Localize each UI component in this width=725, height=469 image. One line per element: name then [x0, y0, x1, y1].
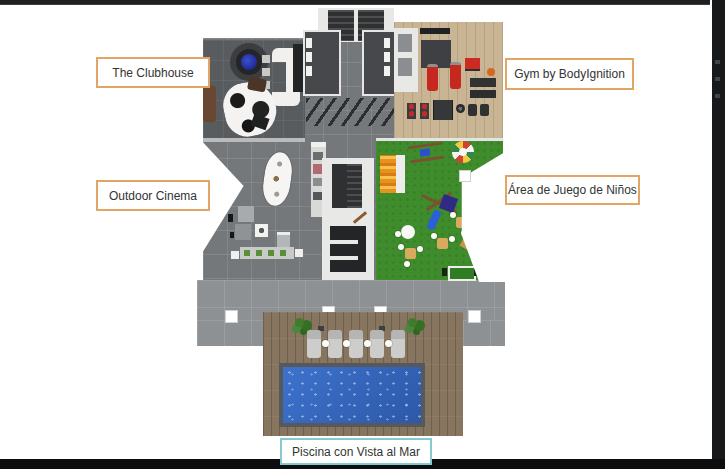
ottoman-1 — [238, 206, 254, 222]
clubhouse-label-text: The Clubhouse — [112, 66, 193, 80]
clubhouse-label: The Clubhouse — [96, 57, 210, 88]
kids-round-table — [401, 225, 415, 239]
u-sofa-opening — [272, 62, 286, 92]
clubhouse-lower-wall — [203, 138, 305, 142]
sidebar-glyph-3 — [715, 94, 720, 98]
pool-side-table-3 — [364, 340, 371, 347]
kids-table-3 — [405, 248, 416, 259]
screenshot-canvas: The Clubhouse Gym by BodyIgnition Outdoo… — [0, 0, 725, 469]
red-weight-rack — [465, 58, 480, 71]
gym-stool-1 — [468, 104, 477, 116]
kids-chair-dot-8 — [417, 246, 423, 252]
shower-stall-1 — [398, 34, 412, 52]
terrace-pillar-4 — [468, 310, 481, 323]
terrace-left-column — [197, 320, 263, 346]
climbing-wall-ledge — [396, 155, 405, 193]
machine-room-divider-2 — [330, 256, 358, 260]
kids-table-2 — [437, 238, 448, 249]
speaker-2 — [230, 232, 234, 238]
kids-chair-dot-2 — [450, 212, 456, 218]
kids-chair-dot-1 — [395, 231, 401, 237]
treadmill-1 — [427, 64, 438, 91]
dumbbell-stand-1 — [407, 103, 416, 119]
gym-bench-1 — [470, 78, 496, 87]
lounge-chair-4 — [370, 330, 384, 358]
sidebar-glyph-2 — [715, 77, 720, 81]
deck-plant-left — [295, 318, 304, 327]
sidebar-glyph-1 — [715, 60, 720, 64]
gym-stool-2 — [480, 104, 489, 116]
bathroom-right-fixture-2 — [384, 52, 390, 62]
kids-chair-dot-6 — [449, 236, 455, 242]
swimming-pool — [283, 367, 421, 423]
dining-table-blue-top — [241, 54, 257, 70]
bathroom-right-fixture-1 — [384, 38, 390, 48]
terrace-right-column — [463, 320, 505, 346]
lounge-chair-2 — [328, 330, 342, 358]
bathroom-right-fixture-3 — [384, 66, 390, 76]
bathroom-left-fixture-3 — [306, 66, 312, 76]
pool-side-table-1 — [322, 340, 329, 347]
gym-bench-2 — [470, 90, 496, 98]
cinema-label-text: Outdoor Cinema — [109, 189, 197, 203]
planter-greens — [244, 250, 290, 256]
right-frame-bar — [712, 0, 725, 469]
top-frame-bar — [0, 0, 710, 5]
speaker-1 — [228, 214, 233, 222]
brown-sofa — [203, 86, 216, 122]
lounge-chair-5 — [391, 330, 405, 358]
gym-label: Gym by BodyIgnition — [505, 58, 634, 90]
pool-side-table-2 — [343, 340, 350, 347]
spinner-hub — [459, 148, 467, 156]
stool-2 — [262, 68, 270, 76]
kids-chair-dot-5 — [431, 233, 437, 239]
terrace-pillar-1 — [225, 310, 238, 323]
gym-wall-rack — [420, 28, 450, 34]
swing-seat — [420, 148, 431, 156]
deck-plant-right — [408, 318, 417, 327]
kids-label-text: Área de Juego de Niños — [508, 183, 637, 197]
exercise-ball — [487, 68, 495, 76]
cinema-label: Outdoor Cinema — [96, 180, 210, 211]
stairwell-divider — [354, 10, 358, 41]
side-table-tray — [255, 224, 268, 237]
climbing-wall — [380, 155, 396, 193]
bathroom-right — [362, 30, 398, 96]
kids-area-wall — [376, 138, 503, 141]
treadmill-2 — [450, 62, 461, 89]
dumbbell-stand-2 — [420, 103, 429, 119]
bathroom-left-fixture-1 — [306, 38, 312, 48]
shower-stall-2 — [398, 58, 412, 76]
pool-label-text: Piscina con Vista al Mar — [292, 445, 420, 459]
kids-label: Área de Juego de Niños — [505, 175, 640, 205]
folding-partition — [306, 98, 398, 126]
mini-soccer-table — [448, 266, 476, 281]
facade-pillar — [459, 170, 471, 182]
stool-1 — [262, 55, 270, 63]
bathroom-left-fixture-2 — [306, 52, 312, 62]
pool-side-table-4 — [385, 340, 392, 347]
machine-room-divider-1 — [330, 240, 358, 244]
lounge-chair-1 — [307, 330, 321, 358]
planter-end-right — [295, 249, 303, 257]
soccer-goal-left — [442, 268, 447, 276]
planter-end-left — [231, 251, 239, 259]
gym-cabinet — [433, 100, 453, 120]
machine-room — [330, 226, 366, 272]
kettlebell — [456, 104, 465, 113]
gym-label-text: Gym by BodyIgnition — [514, 67, 625, 81]
pool-label: Piscina con Vista al Mar — [280, 438, 432, 465]
ottoman-2 — [235, 224, 251, 240]
kids-chair-dot-9 — [404, 261, 410, 267]
lounge-chair-3 — [349, 330, 363, 358]
kids-chair-dot-7 — [398, 244, 404, 250]
stairwell-steps — [347, 164, 362, 208]
